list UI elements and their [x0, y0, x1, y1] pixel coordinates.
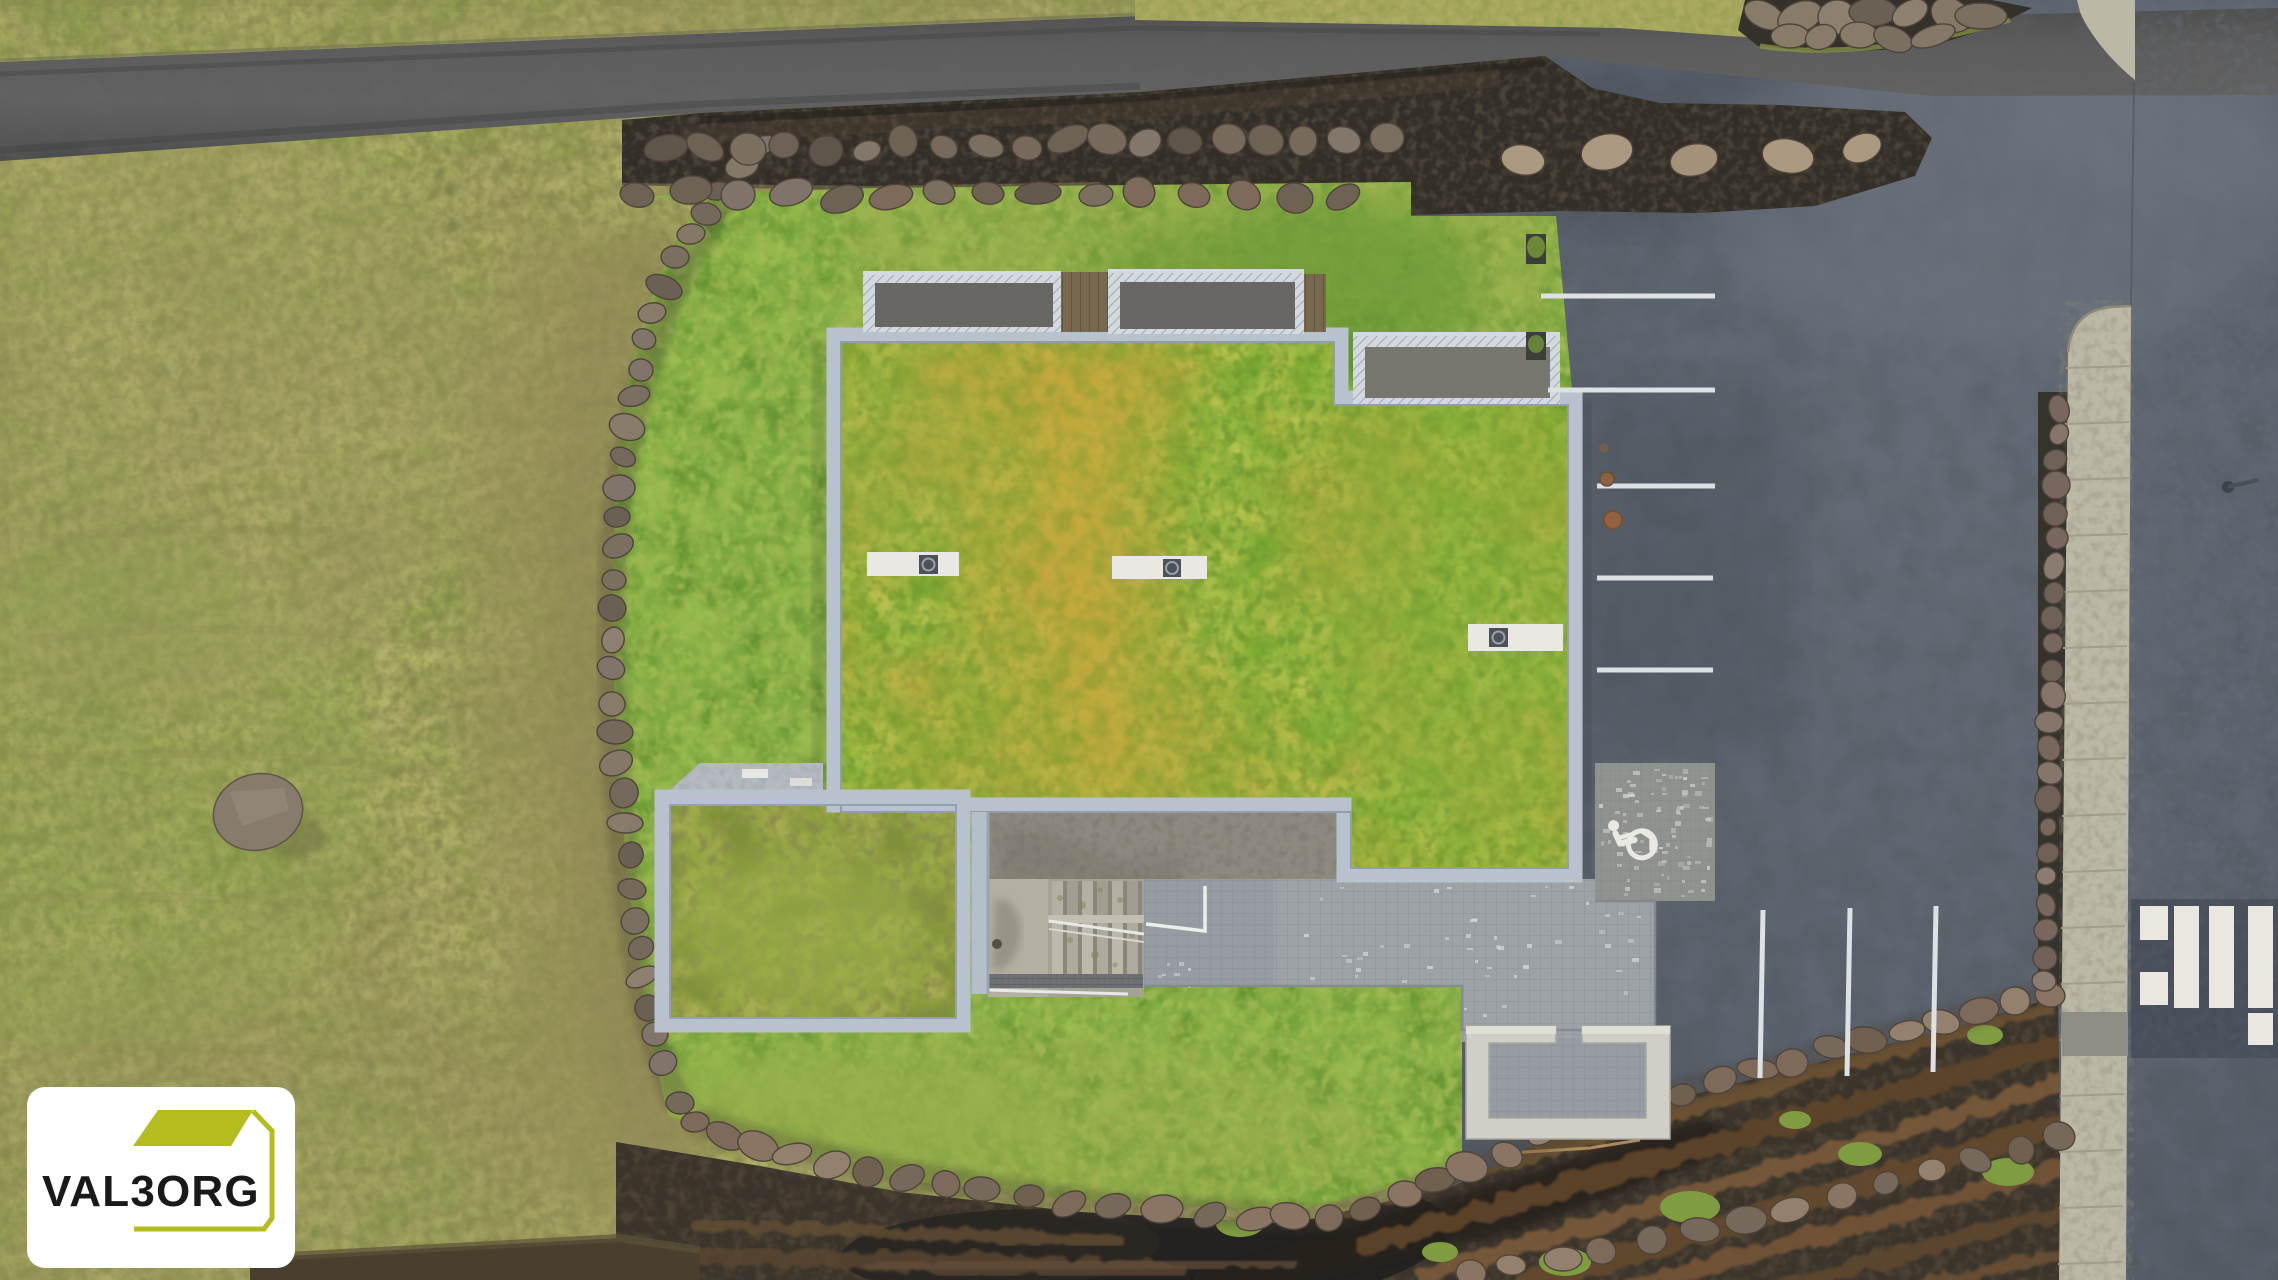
svg-text:VAL3ORG: VAL3ORG	[42, 1167, 260, 1216]
